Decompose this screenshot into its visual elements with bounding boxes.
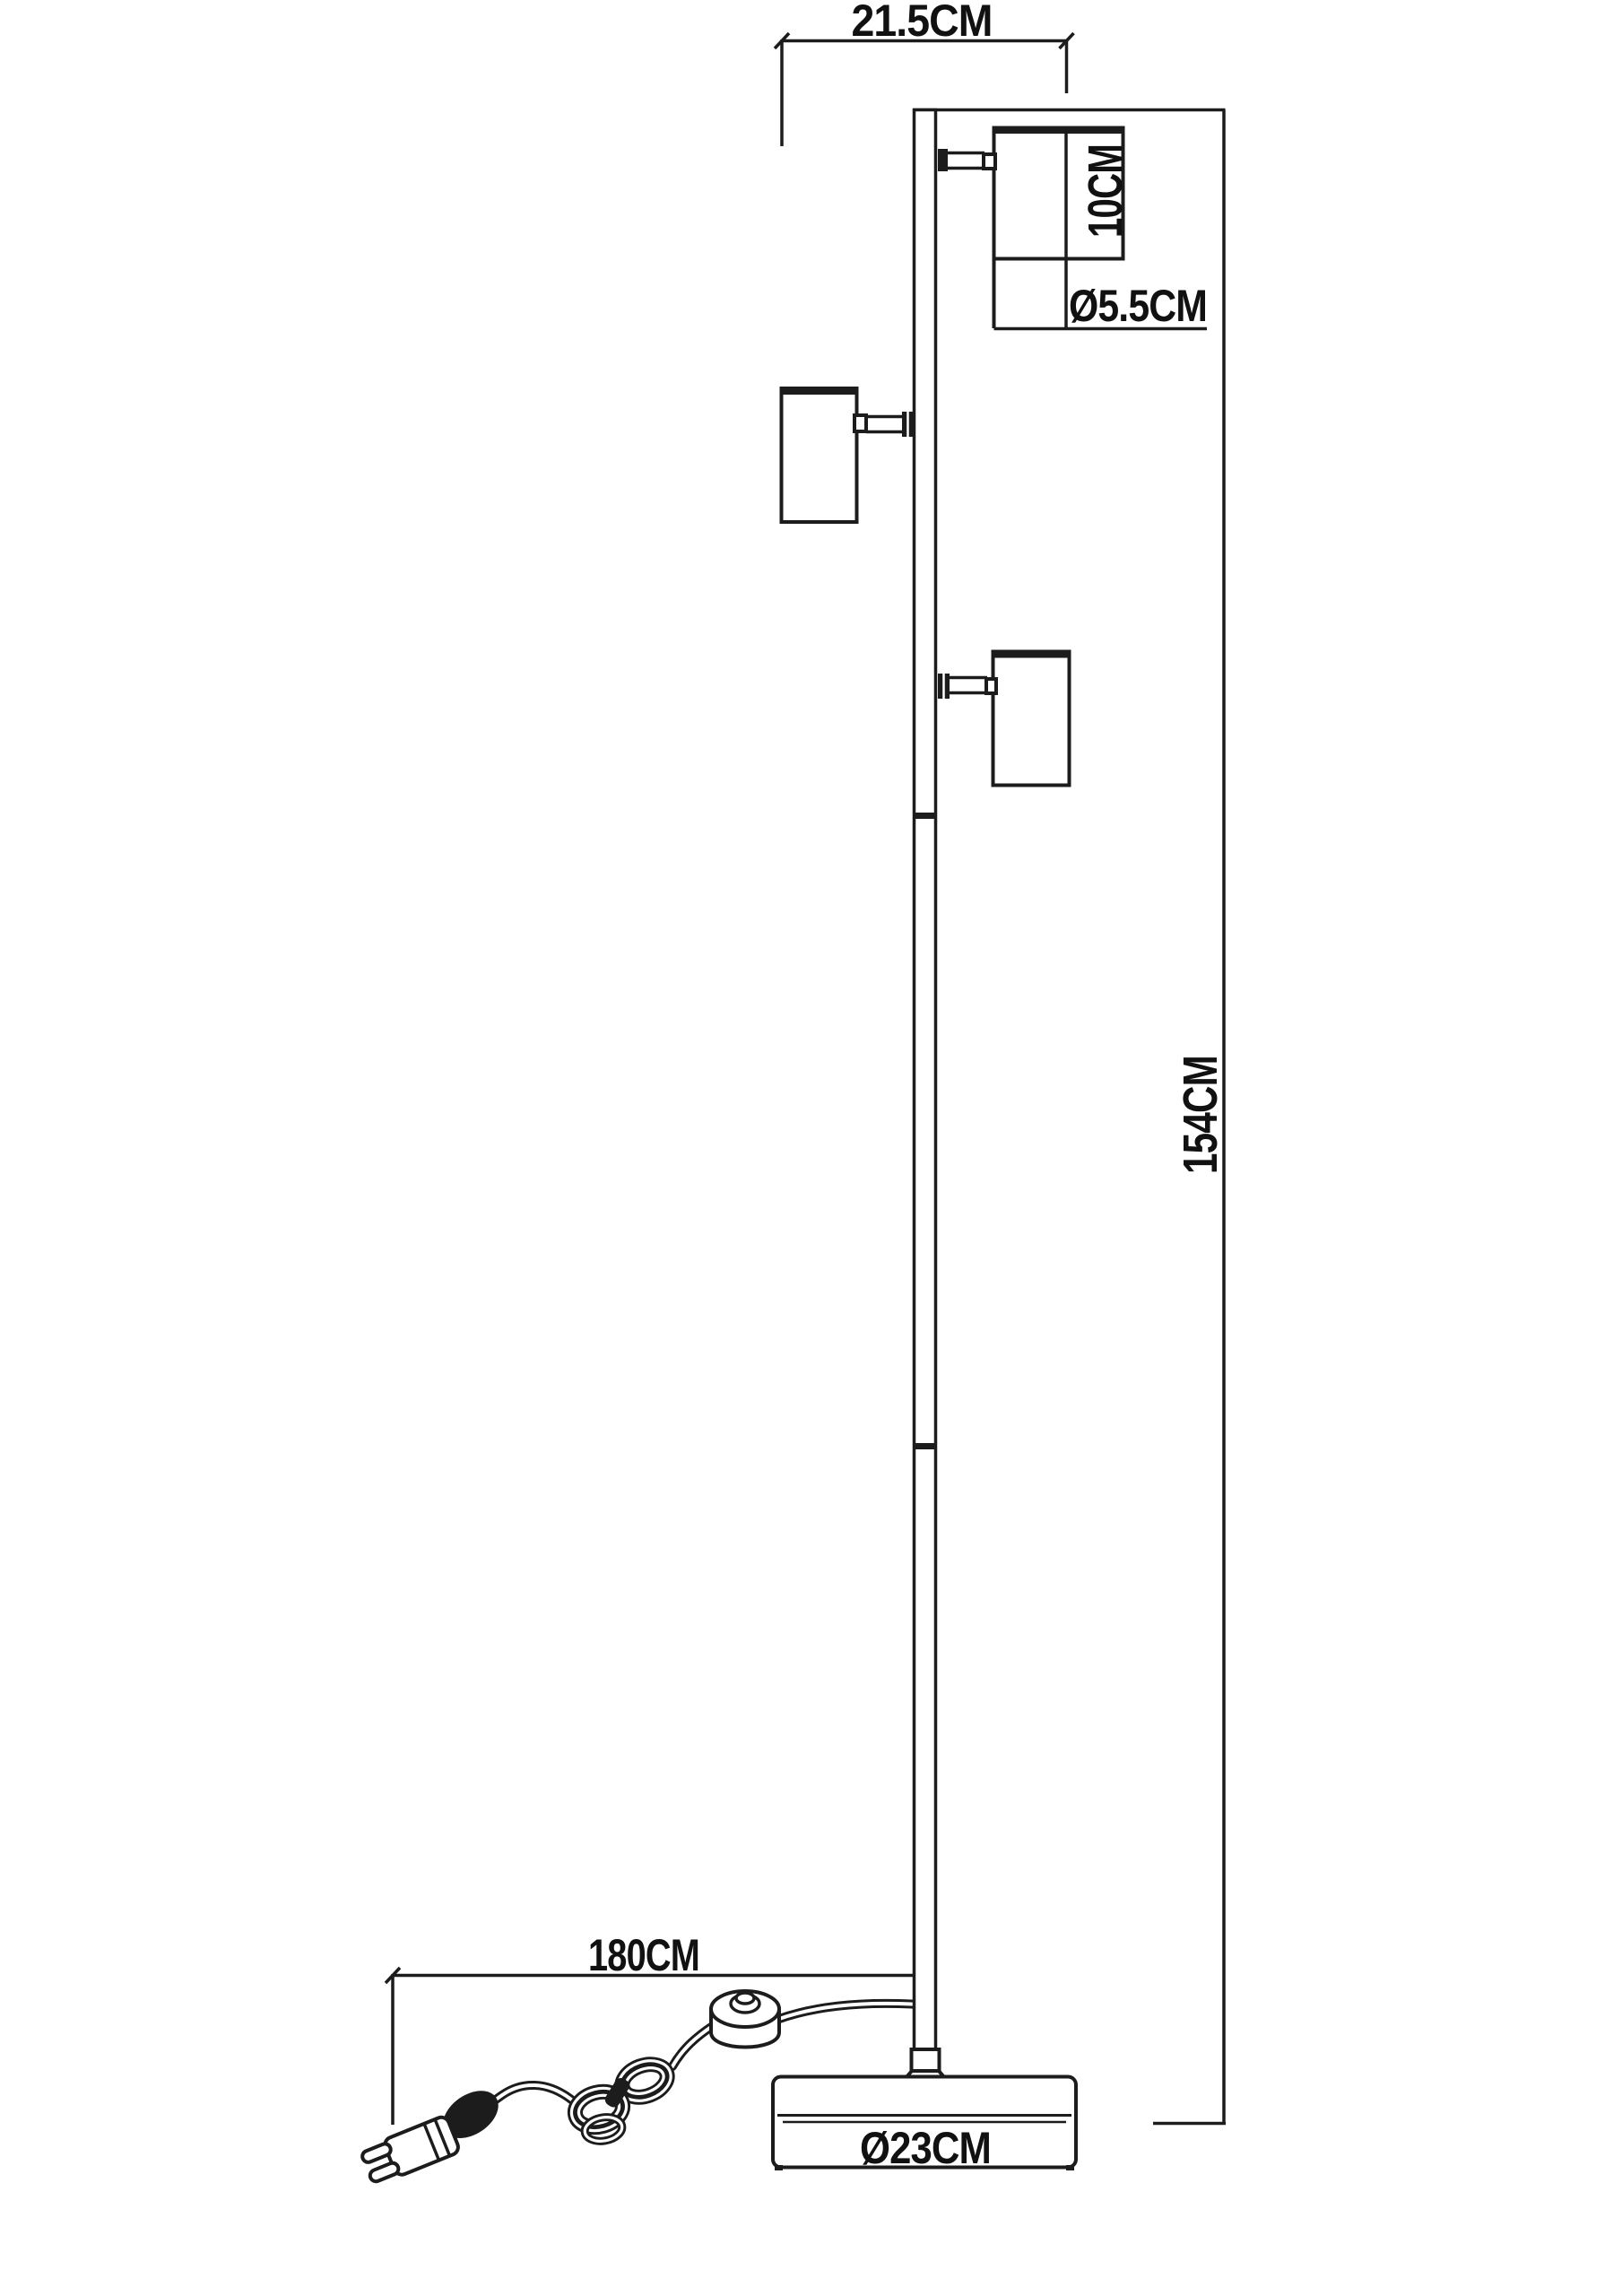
top-width-label: 21.5CM <box>852 0 993 46</box>
base-foot-right <box>1066 2165 1074 2170</box>
head1-arm-collar <box>938 149 948 171</box>
lamp-pole <box>913 110 937 2077</box>
floor-lamp-dimension-drawing: 154CM 21.5CM 180CM <box>0 0 1622 2296</box>
head2-arm <box>854 412 915 437</box>
head2-arm-shaft <box>866 417 904 432</box>
head1-arm <box>938 149 995 171</box>
head1-arm-shaft <box>948 153 984 169</box>
head3-arm <box>938 674 996 699</box>
head2-arm-knob <box>854 415 866 431</box>
head1-arm-knob <box>984 154 995 169</box>
pole-joint-lower <box>913 1443 937 1449</box>
pole-body <box>915 110 936 2077</box>
head-diameter-label: Ø5.5CM <box>1069 281 1207 331</box>
switch-button-top <box>736 1993 754 2004</box>
plug-pin-bottom <box>369 2161 400 2183</box>
cord-coil <box>567 2054 676 2144</box>
head3-arm-knob <box>986 679 996 693</box>
pole-joint-upper <box>913 813 937 819</box>
spotlight-head-3 <box>938 652 1070 786</box>
power-plug <box>353 2078 514 2187</box>
base-foot-left <box>775 2165 783 2170</box>
technical-drawing-canvas: 154CM 21.5CM 180CM <box>0 0 1622 2296</box>
spotlight-head-2 <box>781 388 915 522</box>
lamp-base: Ø23CM <box>773 2049 1076 2173</box>
spotlight-head-1: 10CM Ø5.5CM <box>938 128 1207 332</box>
plug-pin-top <box>360 2142 392 2163</box>
head-length-label: 10CM <box>1079 144 1132 238</box>
foot-switch <box>711 1991 779 2048</box>
base-diameter-label: Ø23CM <box>860 2123 991 2173</box>
head2-body <box>782 388 857 522</box>
head3-body <box>993 652 1070 786</box>
cord-length-label: 180CM <box>588 1930 699 1980</box>
base-collar <box>912 2049 940 2071</box>
dimension-total-height: 154CM <box>913 110 1227 2125</box>
head3-arm-shaft <box>950 678 987 693</box>
total-height-label: 154CM <box>1174 1056 1227 1174</box>
